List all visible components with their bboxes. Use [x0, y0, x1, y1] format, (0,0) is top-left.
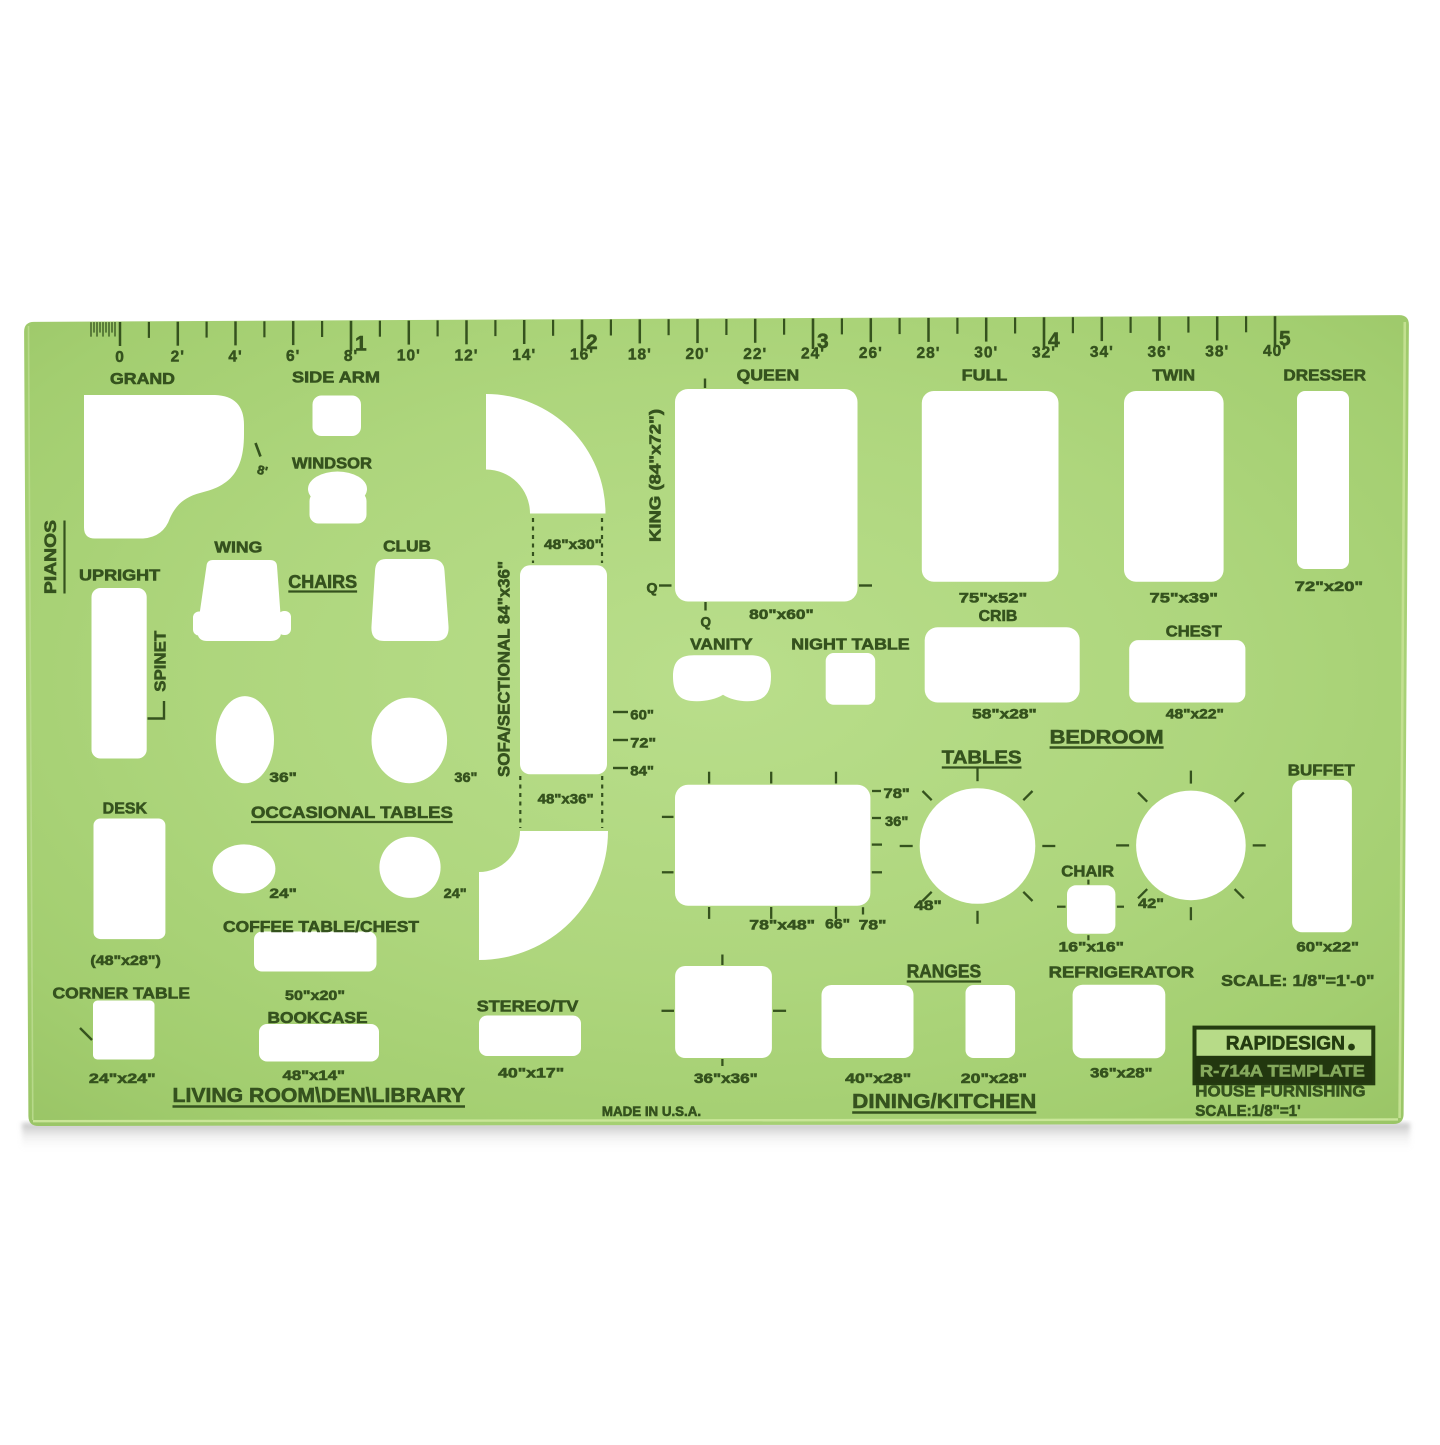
svg-text:16"x16": 16"x16" — [1059, 939, 1125, 955]
svg-text:BOOKCASE: BOOKCASE — [268, 1010, 368, 1027]
svg-text:58"x28": 58"x28" — [972, 706, 1037, 722]
svg-text:SIDE ARM: SIDE ARM — [292, 370, 380, 387]
svg-text:10': 10' — [397, 348, 421, 365]
svg-text:TABLES: TABLES — [942, 748, 1022, 768]
svg-text:66": 66" — [825, 916, 850, 932]
svg-text:72"x20": 72"x20" — [1295, 578, 1363, 594]
svg-text:75"x39": 75"x39" — [1150, 590, 1218, 606]
svg-text:20"x28": 20"x28" — [961, 1070, 1027, 1086]
svg-text:CLUB: CLUB — [383, 539, 431, 556]
svg-text:REFRIGERATOR: REFRIGERATOR — [1049, 965, 1194, 982]
svg-text:14': 14' — [512, 347, 536, 364]
svg-text:36": 36" — [269, 769, 297, 785]
svg-text:CORNER TABLE: CORNER TABLE — [53, 986, 191, 1003]
svg-text:GRAND: GRAND — [110, 371, 175, 388]
svg-text:WINDSOR: WINDSOR — [292, 456, 372, 473]
svg-text:SCALE: 1/8"=1'-0": SCALE: 1/8"=1'-0" — [1221, 973, 1374, 990]
svg-text:48"x14": 48"x14" — [283, 1067, 346, 1083]
svg-text:BEDROOM: BEDROOM — [1050, 728, 1164, 749]
svg-text:CHAIR: CHAIR — [1061, 864, 1114, 881]
svg-text:KING (84"x72"): KING (84"x72") — [648, 409, 665, 542]
svg-text:OCCASIONAL TABLES: OCCASIONAL TABLES — [251, 803, 453, 822]
svg-text:78"x48": 78"x48" — [749, 917, 815, 933]
svg-text:24": 24" — [269, 885, 297, 901]
svg-text:BUFFET: BUFFET — [1288, 763, 1355, 780]
svg-text:QUEEN: QUEEN — [737, 368, 800, 385]
svg-text:84": 84" — [630, 763, 654, 779]
svg-text:VANITY: VANITY — [690, 637, 753, 654]
svg-text:SPINET: SPINET — [153, 631, 170, 692]
svg-text:42": 42" — [1138, 895, 1164, 911]
svg-text:HOUSE FURNISHING: HOUSE FURNISHING — [1195, 1084, 1365, 1101]
svg-text:STEREO/TV: STEREO/TV — [477, 999, 579, 1016]
svg-text:DESK: DESK — [103, 801, 148, 818]
svg-text:36": 36" — [885, 813, 908, 829]
svg-text:6': 6' — [286, 348, 300, 365]
svg-text:FULL: FULL — [962, 368, 1008, 385]
svg-text:24': 24' — [801, 346, 825, 363]
svg-text:WING: WING — [214, 540, 262, 557]
svg-text:36": 36" — [454, 769, 477, 785]
svg-text:Q: Q — [701, 615, 712, 630]
svg-text:8': 8' — [344, 348, 358, 365]
svg-text:26': 26' — [859, 345, 883, 362]
svg-text:0: 0 — [115, 349, 125, 366]
svg-text:40"x17": 40"x17" — [498, 1065, 564, 1081]
svg-text:48"x22": 48"x22" — [1166, 706, 1224, 722]
svg-text:SCALE:1/8"=1': SCALE:1/8"=1' — [1195, 1103, 1300, 1120]
svg-text:TWIN: TWIN — [1152, 368, 1195, 385]
svg-text:28': 28' — [917, 345, 941, 362]
svg-text:72": 72" — [630, 735, 656, 751]
svg-text:24"x24": 24"x24" — [89, 1070, 156, 1086]
svg-text:CHEST: CHEST — [1166, 624, 1223, 641]
svg-text:75"x52": 75"x52" — [959, 590, 1027, 606]
svg-text:78": 78" — [859, 917, 887, 933]
svg-text:RAPIDESIGN: RAPIDESIGN — [1226, 1033, 1345, 1055]
svg-text:22': 22' — [743, 346, 767, 363]
svg-text:20': 20' — [686, 346, 710, 363]
svg-text:12': 12' — [455, 347, 479, 364]
svg-text:48"x36": 48"x36" — [538, 791, 594, 807]
svg-text:SOFA/SECTIONAL 84"x36": SOFA/SECTIONAL 84"x36" — [496, 561, 514, 777]
svg-text:78": 78" — [884, 785, 910, 801]
svg-text:LIVING ROOM\DEN\LIBRARY: LIVING ROOM\DEN\LIBRARY — [173, 1085, 466, 1107]
svg-text:PIANOS: PIANOS — [42, 520, 60, 594]
svg-text:RANGES: RANGES — [907, 962, 981, 982]
svg-text:CRIB: CRIB — [979, 608, 1018, 625]
svg-text:COFFEE TABLE/CHEST: COFFEE TABLE/CHEST — [223, 919, 420, 936]
svg-text:4': 4' — [228, 348, 242, 365]
svg-text:60": 60" — [630, 707, 654, 723]
svg-text:Q: Q — [647, 581, 658, 596]
svg-text:50"x20": 50"x20" — [285, 987, 345, 1003]
svg-text:16': 16' — [570, 347, 594, 364]
svg-text:40"x28": 40"x28" — [845, 1070, 911, 1086]
svg-text:48"x30": 48"x30" — [544, 536, 602, 552]
svg-text:(48"x28"): (48"x28") — [90, 952, 160, 968]
svg-text:36': 36' — [1148, 344, 1172, 361]
svg-text:R-714A TEMPLATE: R-714A TEMPLATE — [1200, 1063, 1365, 1081]
svg-text:60"x22": 60"x22" — [1296, 939, 1359, 955]
svg-text:34': 34' — [1090, 344, 1114, 361]
svg-text:36"x36": 36"x36" — [694, 1070, 758, 1086]
svg-text:CHAIRS: CHAIRS — [288, 572, 357, 592]
svg-text:38': 38' — [1205, 344, 1229, 361]
svg-text:DINING/KITCHEN: DINING/KITCHEN — [852, 1091, 1036, 1113]
svg-text:DRESSER: DRESSER — [1283, 368, 1366, 385]
svg-text:18': 18' — [628, 346, 652, 363]
svg-text:24": 24" — [444, 885, 467, 901]
svg-text:36"x28": 36"x28" — [1090, 1064, 1152, 1080]
svg-text:2': 2' — [171, 349, 185, 366]
svg-text:48": 48" — [914, 897, 942, 913]
svg-text:30': 30' — [974, 345, 998, 362]
svg-text:40': 40' — [1263, 343, 1287, 360]
svg-text:NIGHT TABLE: NIGHT TABLE — [791, 637, 909, 654]
svg-text:UPRIGHT: UPRIGHT — [79, 568, 161, 585]
svg-text:32': 32' — [1032, 344, 1056, 361]
svg-text:80"x60": 80"x60" — [749, 606, 814, 622]
svg-text:MADE IN U.S.A.: MADE IN U.S.A. — [602, 1104, 701, 1119]
